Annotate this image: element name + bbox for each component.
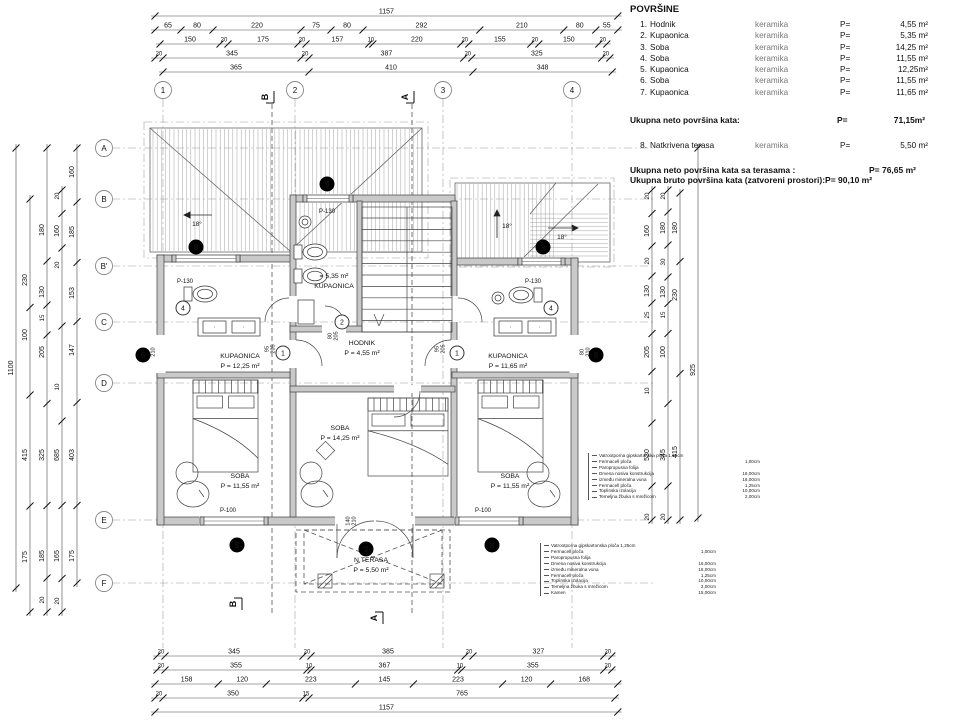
door-size-label: 210 bbox=[352, 516, 358, 525]
legend-subtotal-label: Ukupna neto površina kata: bbox=[630, 115, 837, 125]
door-swing bbox=[394, 391, 420, 417]
dim-label: 147 bbox=[69, 344, 76, 356]
legend-row-number: 8. bbox=[630, 140, 650, 151]
door-swing bbox=[265, 298, 289, 322]
dim-label: 230 bbox=[672, 289, 679, 301]
dim-label: 180 bbox=[660, 222, 667, 234]
dim-label: 130 bbox=[39, 286, 46, 298]
dim-label: 410 bbox=[385, 65, 397, 72]
legend-p: P= bbox=[840, 64, 868, 75]
room-label: P = 11,65 m² bbox=[489, 363, 528, 370]
stair-arrow-icon bbox=[379, 314, 384, 326]
window-label: P-130 bbox=[319, 209, 336, 215]
legend-row-number: 1. bbox=[630, 19, 650, 30]
position-marker-number: 3 bbox=[364, 545, 369, 554]
room-label: P = 11,55 m² bbox=[491, 483, 530, 490]
legend-rows: 1.HodnikkeramikaP=4,55 m²2.Kupaonicakera… bbox=[630, 19, 952, 186]
dim-label: 130 bbox=[644, 285, 651, 297]
legend-total-net-label: Ukupna neto površina kata sa terasama : bbox=[630, 165, 795, 175]
dim-label: 20 bbox=[660, 513, 667, 520]
stair-arrow-icon bbox=[374, 314, 379, 326]
dim-label: 160 bbox=[54, 225, 61, 237]
legend-material: keramika bbox=[755, 140, 840, 151]
dim-label: 168 bbox=[578, 677, 590, 684]
floor-plan-sheet: 18°18°18°1157658022075802922108055150201… bbox=[0, 0, 960, 720]
dim-label: 75 bbox=[312, 23, 320, 30]
legend-p: P= bbox=[840, 30, 868, 41]
legend-area-value: 4,55 m² bbox=[868, 19, 928, 30]
legend-row-number: 5. bbox=[630, 64, 650, 75]
room-label: KUPAONICA bbox=[220, 353, 260, 360]
legend-p: P= bbox=[840, 42, 868, 53]
room-label: P = 14,25 m² bbox=[321, 435, 361, 442]
bed bbox=[193, 380, 258, 472]
note-layer-label: Kamen bbox=[551, 590, 698, 596]
room-label: P = 11,55 m² bbox=[221, 483, 260, 490]
room-label: P = 12,25 m² bbox=[221, 363, 261, 370]
legend-row-number: 3. bbox=[630, 42, 650, 53]
section-marker-label: B bbox=[228, 600, 238, 607]
toilet-tank bbox=[184, 287, 192, 301]
pillow bbox=[514, 396, 540, 408]
dim-label: 100 bbox=[660, 346, 667, 358]
position-marker-number: 8 bbox=[490, 541, 495, 550]
dim-label: 150 bbox=[184, 37, 196, 44]
grid-bubble-label: B bbox=[101, 195, 106, 204]
dim-label: 415 bbox=[22, 449, 29, 461]
roof-slope-label: 18° bbox=[557, 233, 567, 241]
bed-headboard bbox=[368, 398, 448, 411]
dim-label: 20 bbox=[599, 38, 606, 44]
section-marker-label: B bbox=[260, 93, 270, 100]
dim-label: 120 bbox=[236, 677, 248, 684]
dim-label: 185 bbox=[39, 550, 46, 562]
dim-label: 20 bbox=[158, 664, 165, 670]
dim-label: 160 bbox=[644, 225, 651, 237]
legend-material: keramika bbox=[755, 87, 840, 98]
dim-label: 205 bbox=[39, 346, 46, 358]
position-marker-number: 6 bbox=[141, 351, 146, 360]
dim-label: 20 bbox=[660, 192, 667, 199]
door-swing bbox=[458, 298, 482, 322]
legend-p: P= bbox=[840, 140, 868, 151]
grid-bubble-label: 2 bbox=[293, 86, 298, 95]
toilet-tank bbox=[294, 269, 302, 283]
slope-arrow-icon bbox=[184, 212, 190, 218]
sink-icon bbox=[302, 219, 308, 225]
legend-room-name: Kupaonica bbox=[650, 64, 755, 75]
side-table bbox=[316, 441, 334, 459]
dim-label: 20 bbox=[644, 192, 651, 199]
wall-layers-note-lower: Vatrootporna gipskartonska ploča 1,25cmF… bbox=[540, 543, 716, 596]
roof-slope-label: 18° bbox=[192, 220, 202, 228]
dim-label: 20 bbox=[54, 597, 61, 604]
room-label: KUPAONICA bbox=[488, 353, 528, 360]
door-swing bbox=[376, 521, 413, 558]
dim-label: 355 bbox=[527, 663, 539, 670]
dim-label: 220 bbox=[251, 23, 263, 30]
legend-total-gross: Ukupna bruto površina kata (zatvoreni pr… bbox=[630, 175, 952, 186]
legend-room-name: Kupaonica bbox=[650, 87, 755, 98]
dim-label: 10 bbox=[306, 664, 313, 670]
room-label: P = 5,50 m² bbox=[353, 567, 389, 574]
position-marker-number: 9 bbox=[194, 243, 199, 252]
dim-label: 403 bbox=[69, 449, 76, 461]
note-layer-label: Temeljna žbuka s mrežicom bbox=[599, 494, 745, 500]
dim-label: 155 bbox=[494, 37, 506, 44]
legend-row-number: 2. bbox=[630, 30, 650, 41]
dim-label: 292 bbox=[416, 23, 428, 30]
dim-label: 925 bbox=[690, 364, 697, 376]
note-layer-value: 15,00cm bbox=[698, 590, 716, 596]
legend-total-net-value: P= 76,65 m² bbox=[869, 165, 916, 175]
dim-label: 223 bbox=[305, 677, 317, 684]
door-size-label: 210 bbox=[151, 347, 157, 356]
legend-row-number: 4. bbox=[630, 53, 650, 64]
room-label: KUPAONICA bbox=[314, 283, 354, 290]
dim-label: 153 bbox=[69, 287, 76, 299]
room-label: SOBA bbox=[501, 473, 520, 480]
dim-label: 327 bbox=[533, 649, 545, 656]
wall-opening bbox=[570, 335, 580, 373]
grid-bubble-label: A bbox=[101, 144, 107, 153]
legend-row: 3.SobakeramikaP=14,25 m² bbox=[630, 42, 952, 53]
blanket-fold bbox=[368, 431, 448, 465]
dim-label: 15 bbox=[303, 692, 310, 698]
dim-label: 180 bbox=[39, 224, 46, 236]
legend-p: P= bbox=[840, 19, 868, 30]
toilet-tank bbox=[534, 288, 542, 302]
dim-label: 100 bbox=[22, 329, 29, 341]
armchair-icon bbox=[528, 481, 560, 507]
legend-material: keramika bbox=[755, 53, 840, 64]
dim-label: 20 bbox=[221, 38, 228, 44]
legend-terrace-row: 8.Natkrivena terasakeramikaP=5,50 m² bbox=[630, 140, 952, 151]
dim-label: 1157 bbox=[379, 9, 394, 16]
dim-label: 20 bbox=[531, 38, 538, 44]
dim-label: 175 bbox=[257, 37, 269, 44]
dim-label: 387 bbox=[381, 51, 393, 58]
wall-opening bbox=[289, 296, 298, 322]
dim-label: 20 bbox=[604, 650, 611, 656]
legend-area-value: 11,65 m² bbox=[868, 87, 928, 98]
dim-label: 220 bbox=[411, 37, 423, 44]
door-size-label: 205 bbox=[334, 331, 340, 340]
dim-label: 205 bbox=[644, 346, 651, 358]
legend-material: keramika bbox=[755, 19, 840, 30]
dim-label: 20 bbox=[644, 513, 651, 520]
legend-material: keramika bbox=[755, 64, 840, 75]
wall-segment bbox=[571, 258, 578, 525]
dim-label: 1157 bbox=[379, 705, 394, 712]
section-marker-label: A bbox=[369, 614, 379, 621]
dim-label: 150 bbox=[563, 37, 575, 44]
legend-p: P= bbox=[840, 87, 868, 98]
dim-label: 185 bbox=[69, 226, 76, 238]
door-marker-number: 1 bbox=[281, 351, 285, 358]
armchair-icon bbox=[177, 481, 209, 507]
grid-bubble-label: B' bbox=[101, 262, 108, 271]
legend-material: keramika bbox=[755, 75, 840, 86]
dim-label: 367 bbox=[379, 663, 391, 670]
legend-row: 6.SobakeramikaP=11,55 m² bbox=[630, 75, 952, 86]
pillow bbox=[197, 396, 223, 408]
legend-p: P= bbox=[840, 75, 868, 86]
note-row: Kamen15,00cm bbox=[544, 590, 716, 596]
wall-segment bbox=[452, 372, 578, 378]
section-marker-label: A bbox=[400, 93, 410, 100]
wall-segment bbox=[357, 201, 362, 331]
dim-label: 350 bbox=[227, 691, 239, 698]
position-marker-number: 9 bbox=[325, 180, 330, 189]
dim-label: 80 bbox=[576, 23, 584, 30]
pillow bbox=[482, 396, 508, 408]
legend-area-value: 12,25m² bbox=[868, 64, 928, 75]
toilet-icon bbox=[514, 290, 529, 300]
position-marker-number: 8 bbox=[235, 541, 240, 550]
slope-arrow-icon bbox=[572, 225, 578, 231]
armchair-icon bbox=[301, 481, 333, 507]
position-marker-number: 6 bbox=[594, 351, 599, 360]
dim-label: 20 bbox=[644, 257, 651, 264]
dim-label: 345 bbox=[226, 51, 238, 58]
dim-label: 160 bbox=[69, 166, 76, 178]
legend-row-number: 7. bbox=[630, 87, 650, 98]
dim-label: 765 bbox=[456, 691, 468, 698]
dim-label: 1100 bbox=[8, 360, 15, 375]
bath-cabinet bbox=[298, 300, 314, 324]
dim-label: 20 bbox=[39, 596, 46, 603]
legend-area-value: 5,50 m² bbox=[868, 140, 928, 151]
dim-label: 157 bbox=[332, 37, 344, 44]
legend-row: 4.SobakeramikaP=11,55 m² bbox=[630, 53, 952, 64]
legend-row: 2.KupaonicakeramikaP=5,35 m² bbox=[630, 30, 952, 41]
door-swing bbox=[296, 340, 322, 366]
legend-row: 7.KupaonicakeramikaP=11,65 m² bbox=[630, 87, 952, 98]
pillow bbox=[372, 414, 405, 426]
armchair-icon bbox=[176, 462, 198, 484]
dim-label: 348 bbox=[537, 65, 549, 72]
dim-label: 15 bbox=[660, 311, 667, 318]
legend-area-value: 5,35 m² bbox=[868, 30, 928, 41]
door-marker-number: 1 bbox=[455, 351, 459, 358]
legend-room-name: Soba bbox=[650, 42, 755, 53]
dim-label: 325 bbox=[39, 449, 46, 461]
dim-label: 325 bbox=[531, 51, 543, 58]
bed bbox=[368, 398, 448, 476]
dim-label: 25 bbox=[644, 311, 651, 318]
legend-row: 5.KupaonicakeramikaP=12,25m² bbox=[630, 64, 952, 75]
wall-opening bbox=[156, 335, 166, 373]
note-row: Temeljna žbuka s mrežicom2,00cm bbox=[592, 494, 760, 500]
legend-room-name: Hodnik bbox=[650, 19, 755, 30]
dim-label: 20 bbox=[54, 192, 61, 199]
room-label: N.TERASA bbox=[354, 557, 388, 564]
room-label: = 5,35 m² bbox=[320, 273, 350, 280]
grid-bubble-label: C bbox=[101, 318, 107, 327]
dim-label: 20 bbox=[304, 650, 311, 656]
legend-area-value: 14,25 m² bbox=[868, 42, 928, 53]
legend-title: POVRŠINE bbox=[630, 4, 952, 15]
window-label: P-130 bbox=[177, 279, 194, 285]
wall-layers-note-upper: Vatrootporna gipskartonska ploča 1,25cmF… bbox=[588, 453, 760, 500]
wall-opening bbox=[394, 385, 421, 393]
grid-bubble-label: 4 bbox=[570, 86, 575, 95]
legend-subtotal: Ukupna neto površina kata:P=71,15m² bbox=[630, 115, 952, 125]
dim-label: 20 bbox=[299, 38, 306, 44]
pillow bbox=[411, 414, 444, 426]
legend-p: P= bbox=[840, 53, 868, 64]
legend-material: keramika bbox=[755, 42, 840, 53]
wall-segment bbox=[290, 386, 455, 392]
armchair-icon bbox=[527, 462, 549, 484]
dim-label: 30 bbox=[660, 258, 667, 265]
blanket-fold bbox=[193, 419, 258, 459]
dim-label: 20 bbox=[466, 650, 473, 656]
dim-label: 20 bbox=[602, 52, 609, 58]
door-size-label: 205 bbox=[441, 344, 447, 353]
door-marker-number: 2 bbox=[340, 320, 344, 327]
dim-label: 223 bbox=[452, 677, 464, 684]
roof-slope-label: 18° bbox=[502, 222, 512, 230]
dim-label: 20 bbox=[156, 52, 163, 58]
dim-label: 180 bbox=[672, 222, 679, 234]
legend-room-name: Natkrivena terasa bbox=[650, 140, 755, 151]
dim-label: 20 bbox=[158, 650, 165, 656]
dim-label: 10 bbox=[367, 38, 374, 44]
wall-segment bbox=[157, 255, 164, 525]
window-label: P-100 bbox=[475, 508, 492, 514]
room-label: SOBA bbox=[231, 473, 250, 480]
dim-label: 210 bbox=[516, 23, 528, 30]
dim-label: 10 bbox=[456, 664, 463, 670]
dim-label: 365 bbox=[230, 65, 242, 72]
dim-label: 15 bbox=[39, 314, 46, 321]
legend-row: 1.HodnikkeramikaP=4,55 m² bbox=[630, 19, 952, 30]
bed-headboard bbox=[193, 380, 258, 393]
blanket-fold bbox=[478, 419, 543, 459]
dim-label: 175 bbox=[22, 551, 29, 563]
door-marker-number: 4 bbox=[549, 306, 553, 313]
area-legend: POVRŠINE 1.HodnikkeramikaP=4,55 m²2.Kupa… bbox=[630, 4, 952, 186]
toilet-icon bbox=[308, 247, 323, 257]
window-label: P-130 bbox=[525, 279, 542, 285]
pillow bbox=[229, 396, 255, 408]
dim-label: 165 bbox=[54, 550, 61, 562]
dim-label: 65 bbox=[164, 23, 172, 30]
dim-label: 685 bbox=[54, 449, 61, 461]
sink-icon bbox=[495, 295, 501, 301]
legend-p: P= bbox=[837, 115, 865, 125]
armchair-icon bbox=[300, 462, 322, 484]
grid-bubble-label: D bbox=[101, 379, 107, 388]
wall-segment bbox=[157, 372, 290, 378]
dim-label: 80 bbox=[193, 23, 201, 30]
grid-bubble-label: E bbox=[101, 516, 106, 525]
dim-label: 20 bbox=[464, 52, 471, 58]
dim-label: 20 bbox=[302, 52, 309, 58]
dim-label: 130 bbox=[660, 286, 667, 298]
room-label: P = 4,55 m² bbox=[344, 350, 380, 357]
legend-area-value: 11,55 m² bbox=[868, 53, 928, 64]
dim-label: 158 bbox=[181, 677, 193, 684]
dim-label: 355 bbox=[230, 663, 242, 670]
door-marker-number: 4 bbox=[181, 306, 185, 313]
dim-label: 10 bbox=[54, 383, 61, 390]
legend-area-value: 11,55 m² bbox=[868, 75, 928, 86]
dim-label: 10 bbox=[644, 387, 651, 394]
legend-room-name: Soba bbox=[650, 53, 755, 64]
dim-label: 385 bbox=[382, 649, 394, 656]
legend-room-name: Soba bbox=[650, 75, 755, 86]
dim-label: 55 bbox=[603, 23, 611, 30]
grid-bubble-label: F bbox=[102, 579, 107, 588]
legend-material: keramika bbox=[755, 30, 840, 41]
room-label: HODNIK bbox=[349, 340, 376, 347]
dim-label: 145 bbox=[379, 677, 391, 684]
grid-bubble-label: 3 bbox=[441, 86, 446, 95]
dim-label: 175 bbox=[69, 550, 76, 562]
dim-label: 20 bbox=[461, 38, 468, 44]
grid-bubble-label: 1 bbox=[161, 86, 166, 95]
dim-label: 230 bbox=[22, 274, 29, 286]
dim-label: 20 bbox=[156, 692, 163, 698]
toilet-tank bbox=[294, 245, 302, 259]
position-marker-number: 9 bbox=[541, 243, 546, 252]
legend-room-name: Kupaonica bbox=[650, 30, 755, 41]
dim-label: 345 bbox=[228, 649, 240, 656]
dim-label: 80 bbox=[343, 23, 351, 30]
toilet-icon bbox=[198, 289, 213, 299]
bed-headboard bbox=[478, 380, 543, 393]
dim-label: 20 bbox=[54, 261, 61, 268]
legend-subtotal-value: 71,15m² bbox=[865, 115, 925, 125]
dim-label: 120 bbox=[521, 677, 533, 684]
note-layer-value: 2,00cm bbox=[745, 494, 760, 500]
legend-total-net: Ukupna neto površina kata sa terasama :P… bbox=[630, 165, 952, 175]
legend-row-number: 6. bbox=[630, 75, 650, 86]
room-label: SOBA bbox=[331, 425, 350, 432]
window-label: P-100 bbox=[220, 508, 237, 514]
dim-label: 20 bbox=[604, 664, 611, 670]
bed bbox=[478, 380, 543, 472]
